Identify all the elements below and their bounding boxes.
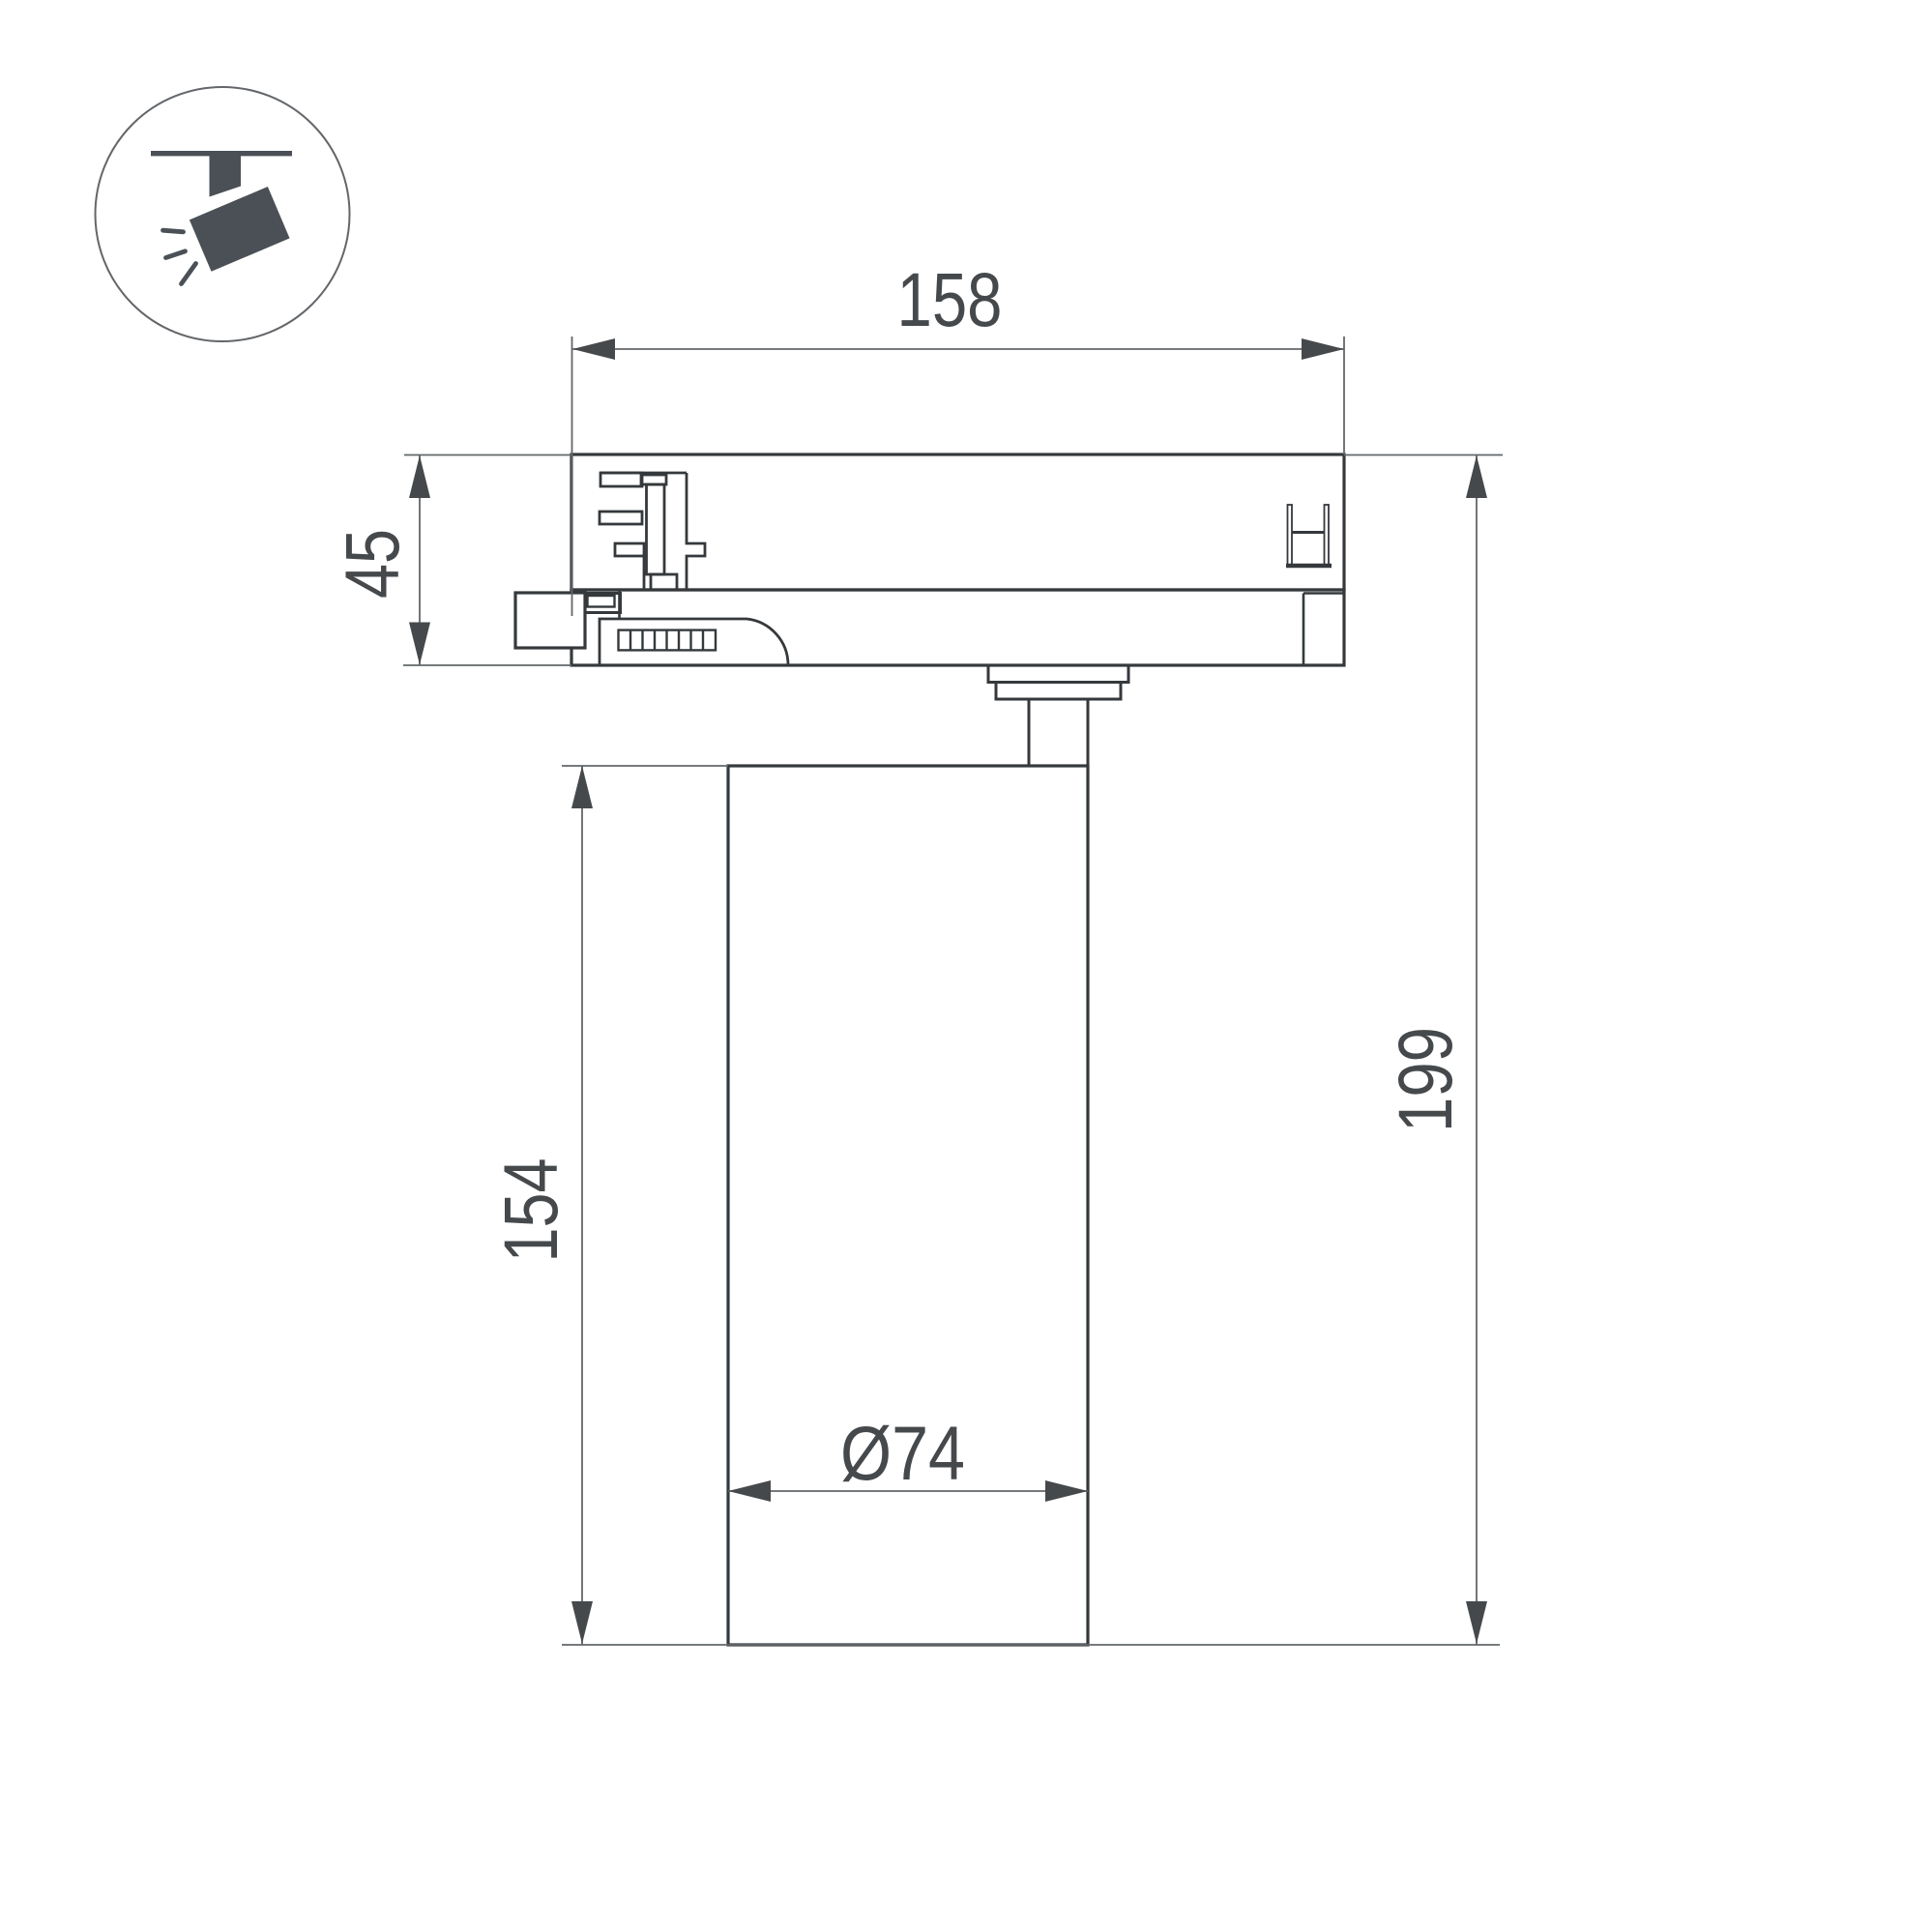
svg-text:199: 199 [1383,1027,1468,1132]
svg-text:45: 45 [330,529,415,599]
svg-text:158: 158 [897,257,1003,342]
svg-text:154: 154 [488,1158,573,1263]
svg-text:Ø74: Ø74 [840,1411,965,1496]
